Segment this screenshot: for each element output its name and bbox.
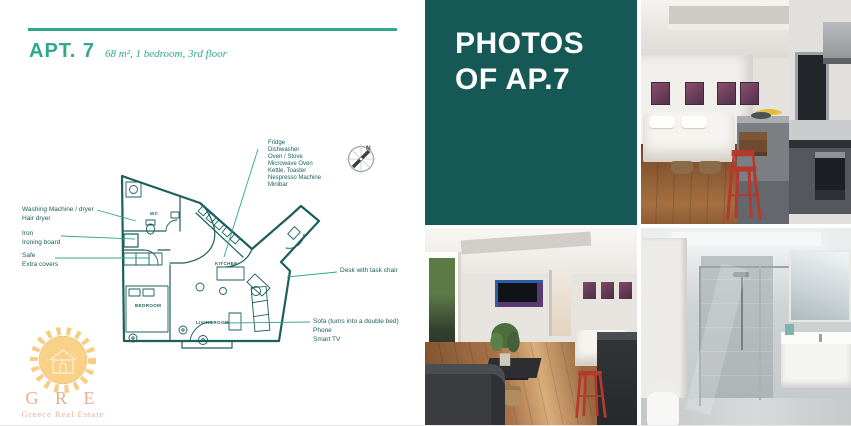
shower-glass-top-bar (699, 266, 791, 268)
wall-art (601, 282, 614, 299)
room-label-wc: WC (150, 211, 159, 216)
double-bed (643, 112, 735, 162)
pillow (681, 116, 707, 128)
room-label-bedroom: BEDROOM (135, 303, 161, 308)
logo-name: Greece Real Estate (22, 409, 105, 419)
photo-living-room (425, 228, 637, 426)
annotation-kitchen-appliances: Fridge Dishwasher Oven / Stove Microwave… (268, 140, 363, 189)
gre-logo: G R E Greece Real Estate (10, 324, 132, 424)
toilet (647, 382, 679, 426)
annotation-line: Phone (313, 326, 425, 335)
kitchen-counter (789, 140, 851, 148)
appliance-item: Nespresso Machine (268, 175, 363, 182)
ceiling-recess (669, 6, 789, 30)
annotation-safe: Safe Extra covers (22, 251, 112, 269)
annotation-ironing: Iron Ironing board (22, 229, 112, 247)
appliance-item: Minibar (268, 182, 363, 189)
under-bed-basket (699, 161, 721, 174)
logo-monogram: G R E (26, 388, 101, 408)
annotation-line: Hair dryer (22, 214, 112, 223)
towel (785, 324, 794, 335)
tv (495, 280, 543, 307)
header-rule (28, 28, 397, 31)
shower-glass-edge (759, 266, 761, 400)
bedroom-furniture (124, 253, 168, 332)
under-bed-basket (671, 161, 693, 174)
dark-sofa (425, 364, 505, 426)
annotation-line: Smart TV (313, 335, 425, 344)
appliance-item: Oven / Stove (268, 154, 363, 161)
faucet (819, 334, 822, 342)
photos-title-line2: OF AP.7 (455, 62, 584, 98)
mirror-cabinet (789, 250, 851, 322)
annotation-line: Washing Machine / dryer (22, 205, 112, 214)
photos-title-line1: PHOTOS (455, 26, 584, 62)
plan-outer-walls (122, 176, 319, 341)
annotation-line: Safe (22, 251, 112, 260)
annotation-line: Ironing board (22, 238, 112, 247)
doorway (549, 270, 571, 336)
vanity-sink (781, 332, 851, 388)
appliance-item: Kettle, Toaster (268, 168, 363, 175)
wall-art (583, 282, 596, 299)
wall-art (717, 82, 736, 105)
photo-bathroom (641, 228, 851, 426)
kitchen-wall (789, 0, 851, 224)
wall-art (685, 82, 704, 105)
appliance-item: Microwave Oven (268, 161, 363, 168)
wall-art (740, 82, 759, 105)
wall-art (651, 82, 670, 105)
range-hood (823, 22, 851, 64)
annotation-sofa: Sofa (turns into a double bed) Phone Sma… (313, 317, 425, 344)
presentation-slide: APT. 7 68 m², 1 bedroom, 3rd floor (0, 0, 851, 426)
annotation-desk: Desk with task chair (340, 266, 425, 275)
ceiling-light-strip (671, 232, 821, 246)
annotation-line: Sofa (turns into a double bed) (313, 317, 425, 326)
room-label-livingroom: LIVINGROOM (196, 320, 229, 325)
room-label-kitchen: KITCHEN (215, 261, 238, 266)
potted-plant (489, 322, 521, 368)
oven (815, 152, 845, 200)
compass-north-label: N (366, 145, 371, 152)
fruit-bowl (751, 112, 771, 119)
annotation-line: Iron (22, 229, 112, 238)
wc-fixtures (126, 182, 179, 234)
apartment-subtitle: 68 m², 1 bedroom, 3rd floor (105, 48, 227, 60)
red-bar-stool (573, 350, 609, 426)
photo-studio-kitchen (641, 0, 851, 224)
basket (503, 386, 521, 406)
red-bar-stool (723, 148, 765, 224)
desk-and-chair (247, 227, 300, 296)
photos-title: PHOTOS OF AP.7 (455, 26, 584, 98)
annotation-line: Desk with task chair (340, 266, 425, 275)
annotation-line: Extra covers (22, 260, 112, 269)
appliance-item: Fridge (268, 140, 363, 147)
plan-interior-walls (124, 196, 252, 341)
annotation-laundry: Washing Machine / dryer Hair dryer (22, 205, 112, 223)
wall-art (619, 282, 632, 299)
backsplash (789, 120, 851, 140)
pillow (649, 116, 675, 128)
appliance-item: Dishwasher (268, 147, 363, 154)
page-title: APT. 7 (29, 40, 95, 63)
